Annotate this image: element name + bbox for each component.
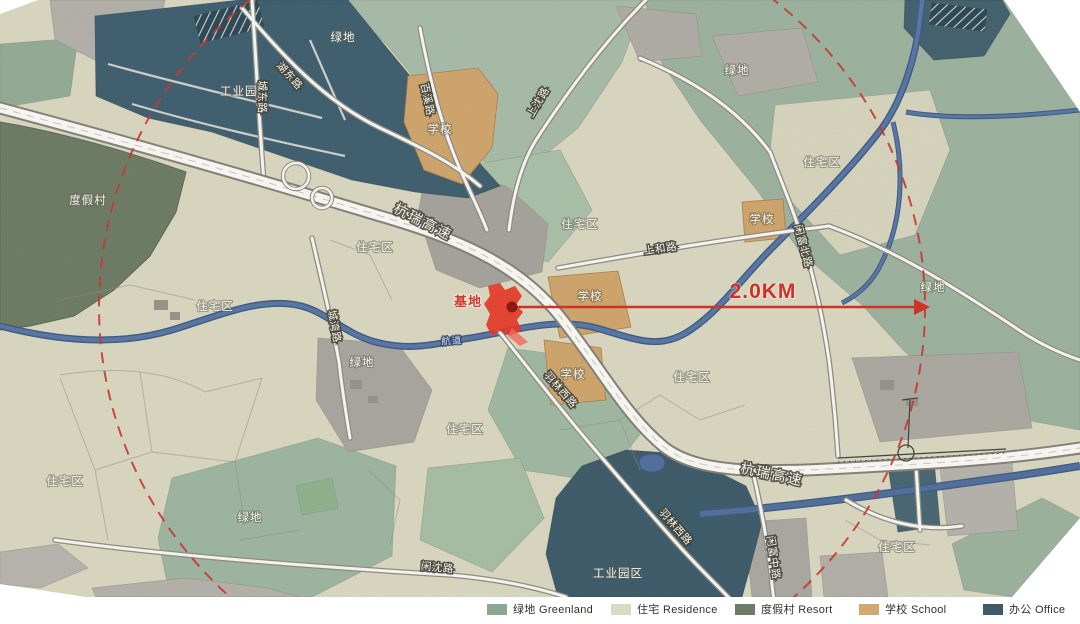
- legend-item-label: 度假村 Resort: [761, 601, 832, 617]
- area-label: 绿地: [921, 280, 946, 294]
- site-label: 基地: [453, 294, 482, 309]
- page: 工业园区绿地绿地度假村住宅区住宅区住宅区住宅区学校学校学校学校绿地绿地住宅区住宅…: [0, 0, 1080, 624]
- area-label: 住宅区: [673, 370, 711, 384]
- area-label: 住宅区: [446, 422, 484, 436]
- area-label: 绿地: [725, 63, 750, 77]
- legend-swatch-resort: [735, 604, 755, 615]
- area-label: 学校: [561, 367, 586, 381]
- area-label: 度假村: [69, 193, 107, 207]
- legend-swatch-school: [859, 604, 879, 615]
- area-label: 学校: [750, 212, 775, 226]
- area-label: 绿地: [350, 355, 375, 369]
- legend-item-school: 学校 School: [859, 601, 983, 617]
- river-label: 航道: [441, 334, 463, 347]
- area-label: 住宅区: [878, 540, 916, 554]
- area-label: 学校: [578, 289, 603, 303]
- legend-item-label: 绿地 Greenland: [513, 601, 593, 617]
- legend-swatch-office: [983, 604, 1003, 615]
- area-label: 住宅区: [46, 474, 84, 488]
- legend-item-office: 办公 Office: [983, 601, 1080, 617]
- area-label: 住宅区: [803, 155, 841, 169]
- area-label: 工业园区: [593, 567, 643, 580]
- legend-swatch-greenland: [487, 604, 507, 615]
- landuse-map: 工业园区绿地绿地度假村住宅区住宅区住宅区住宅区学校学校学校学校绿地绿地住宅区住宅…: [0, 0, 1080, 597]
- legend-item-label: 办公 Office: [1009, 601, 1065, 617]
- legend-item-greenland: 绿地 Greenland: [487, 601, 611, 617]
- legend-item-label: 住宅 Residence: [637, 601, 718, 617]
- legend-swatch-residence: [611, 604, 631, 615]
- site-center-dot: [507, 302, 518, 313]
- area-label: 住宅区: [356, 240, 394, 254]
- legend-item-residence: 住宅 Residence: [611, 601, 735, 617]
- legend-item-resort: 度假村 Resort: [735, 601, 859, 617]
- legend: 绿地 Greenland 住宅 Residence 度假村 Resort 学校 …: [487, 601, 1080, 617]
- area-label: 住宅区: [196, 299, 234, 313]
- area-label: 绿地: [238, 510, 263, 524]
- legend-item-label: 学校 School: [885, 601, 946, 617]
- map-canvas: 工业园区绿地绿地度假村住宅区住宅区住宅区住宅区学校学校学校学校绿地绿地住宅区住宅…: [0, 0, 1080, 597]
- area-label: 学校: [428, 122, 453, 136]
- area-label: 绿地: [331, 30, 356, 44]
- site-marker: [484, 283, 523, 336]
- road-label: 城东路: [256, 81, 269, 114]
- distance-label: 2.0KM: [730, 280, 797, 303]
- area-label: 住宅区: [561, 217, 599, 231]
